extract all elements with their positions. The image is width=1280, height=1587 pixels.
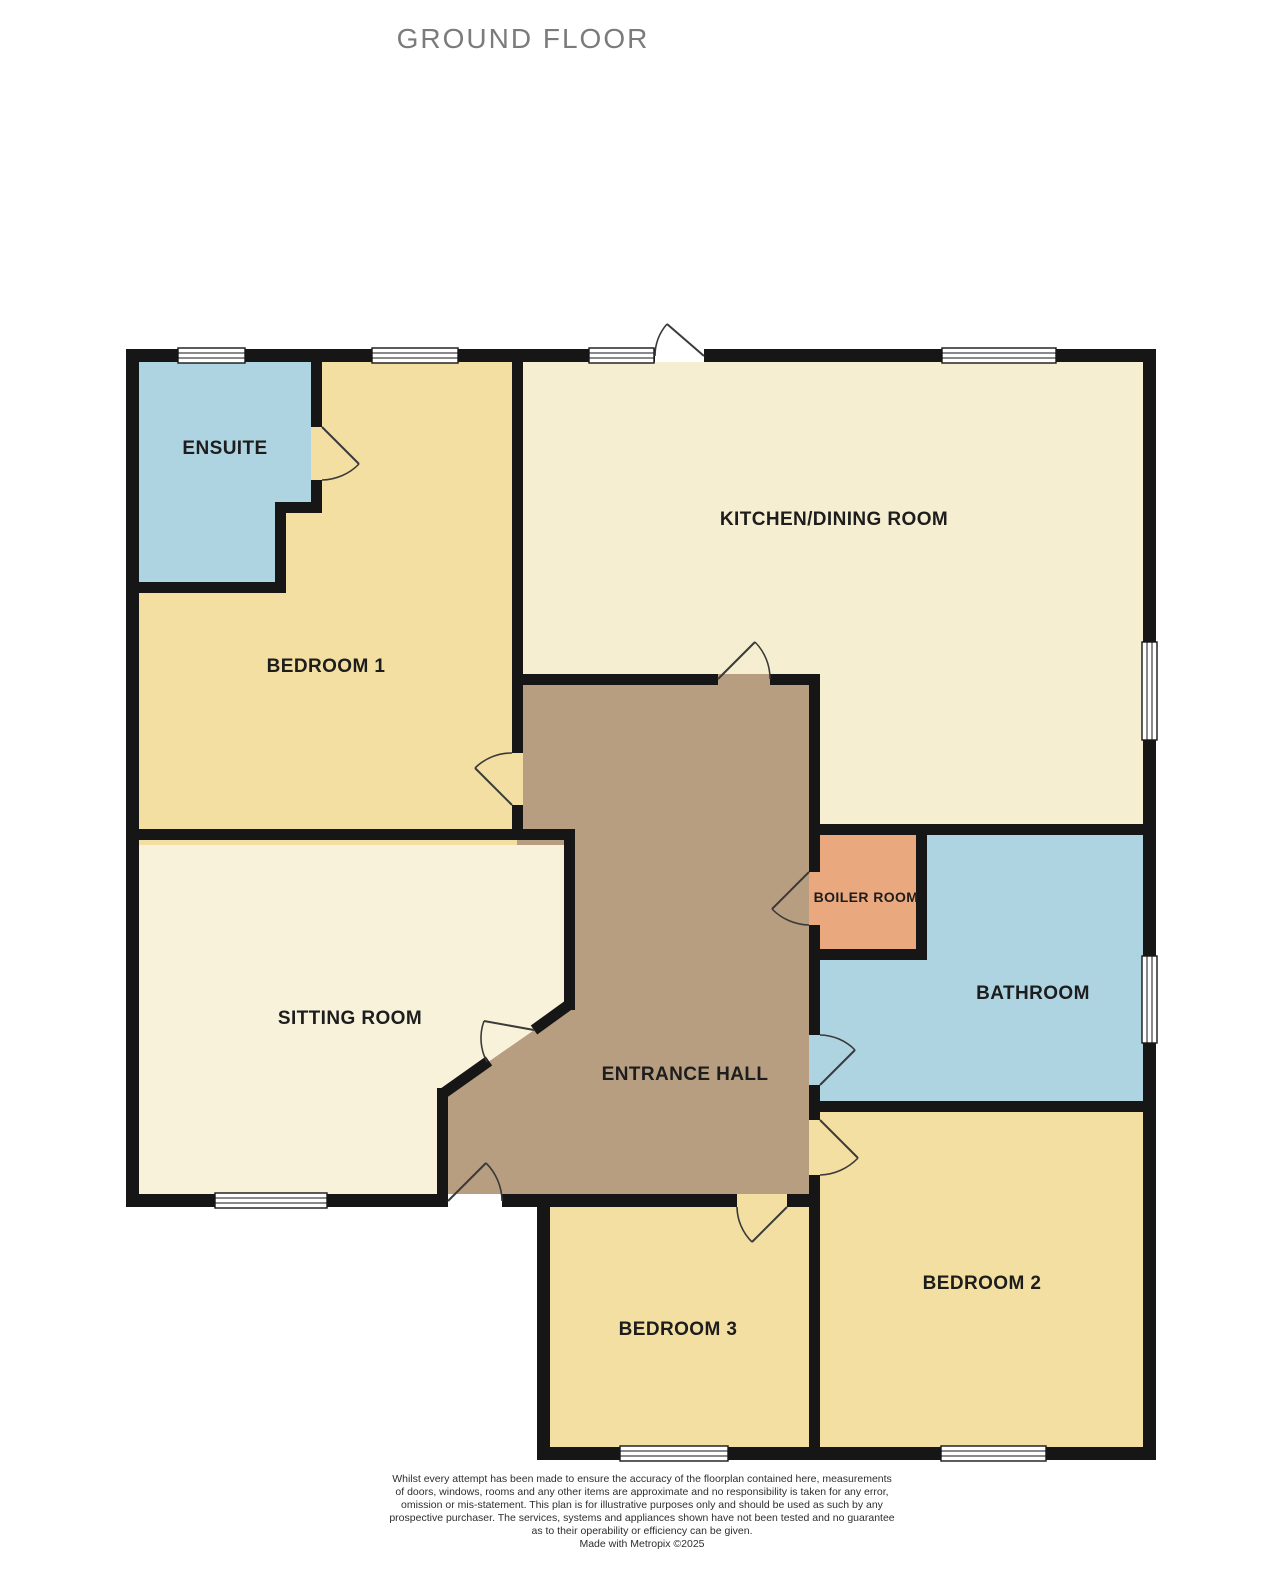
label-bathroom: BATHROOM — [976, 983, 1090, 1004]
label-ensuite: ENSUITE — [182, 438, 267, 459]
label-entrance-hall: ENTRANCE HALL — [602, 1064, 769, 1085]
disclaimer-line: omission or mis-statement. This plan is … — [401, 1499, 884, 1511]
floorplan-page: GROUND FLOOR ENSUITE BEDROOM 1 KITCHEN/D… — [0, 0, 1280, 1587]
wall-left — [126, 349, 139, 1207]
window-kitchen-right — [1142, 642, 1157, 740]
window-bedroom1 — [372, 348, 458, 363]
wall-hall-top — [512, 674, 820, 685]
label-boiler-room: BOILER ROOM — [814, 889, 919, 905]
footer-disclaimer: Whilst every attempt has been made to en… — [389, 1473, 894, 1550]
wall-bedroom1-bottom — [126, 829, 575, 840]
label-sitting-room: SITTING ROOM — [278, 1008, 422, 1029]
door-gap-bedroom3 — [737, 1194, 787, 1207]
window-bedroom2 — [941, 1446, 1046, 1461]
wall-bathroom-bottom — [809, 1101, 1156, 1112]
door-gap-bedroom1 — [512, 753, 523, 805]
door-gap-bedroom2 — [809, 1120, 820, 1175]
wall-bedroom3-left — [537, 1194, 550, 1460]
wall-kitchen-bottom — [809, 824, 1156, 835]
window-bathroom — [1142, 956, 1157, 1043]
wall-boiler-bottom — [809, 949, 927, 960]
wall-hall-left-lower — [437, 1088, 448, 1198]
door-gap-kitchen — [718, 674, 770, 685]
wall-ensuite-notch-v — [275, 502, 286, 593]
window-kitchen-left — [589, 348, 654, 363]
wall-ensuite-bottom — [139, 582, 286, 593]
label-bedroom3: BEDROOM 3 — [619, 1319, 738, 1340]
disclaimer-line: prospective purchaser. The services, sys… — [389, 1512, 894, 1524]
label-bedroom1: BEDROOM 1 — [267, 656, 386, 677]
door-gap-bathroom — [809, 1035, 820, 1085]
floorplan-drawing: GROUND FLOOR ENSUITE BEDROOM 1 KITCHEN/D… — [0, 0, 1280, 1587]
window-ensuite — [178, 348, 245, 363]
disclaimer-line: Whilst every attempt has been made to en… — [392, 1473, 892, 1485]
window-sitting — [215, 1193, 327, 1208]
wall-bedroom2-3-divider — [809, 1207, 820, 1460]
wall-right — [1143, 349, 1156, 1460]
disclaimer-line: of doors, windows, rooms and any other i… — [395, 1486, 888, 1498]
label-kitchen-dining: KITCHEN/DINING ROOM — [720, 509, 948, 530]
wall-sitting-right — [564, 840, 575, 1010]
page-title: GROUND FLOOR — [397, 23, 650, 54]
label-bedroom2: BEDROOM 2 — [923, 1273, 1042, 1294]
window-kitchen-top-right — [942, 348, 1056, 363]
door-gap-hall-rear — [448, 1194, 502, 1207]
window-bedroom3 — [620, 1446, 728, 1461]
metropix-credit: Made with Metropix ©2025 — [579, 1538, 704, 1550]
door-gap-ensuite — [311, 427, 322, 480]
disclaimer-line: as to their operability or efficiency ca… — [531, 1525, 752, 1537]
